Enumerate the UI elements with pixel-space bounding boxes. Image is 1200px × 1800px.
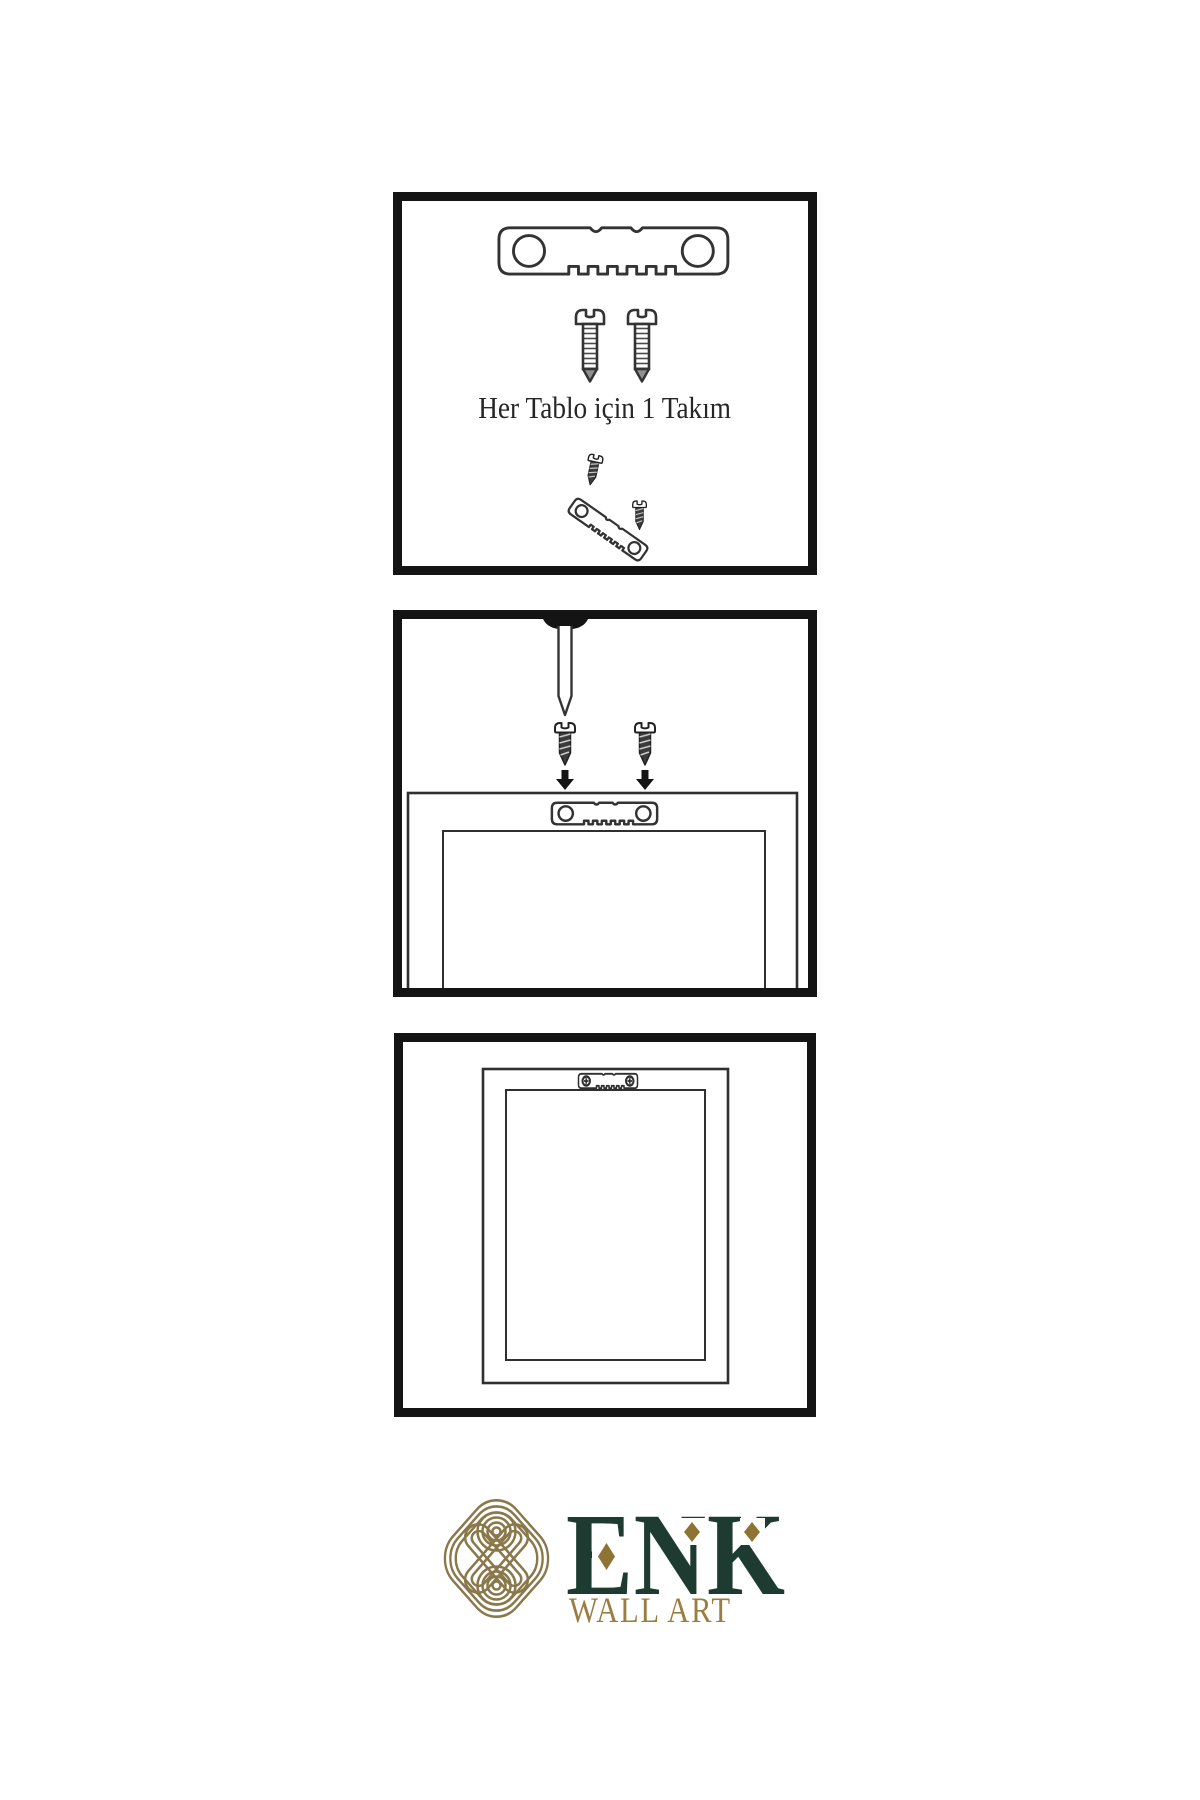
dark-screw-icon xyxy=(635,723,655,765)
diamond-accent-icon xyxy=(684,1522,700,1542)
letter-notch xyxy=(680,1518,705,1545)
down-arrow-icon xyxy=(636,770,654,790)
frame-back-inner-icon xyxy=(443,831,765,988)
panel-mounting xyxy=(393,610,817,997)
letter-notch xyxy=(740,1518,765,1545)
diamond-accent-icon xyxy=(598,1543,615,1570)
instruction-sheet: Her Tablo için 1 Takım xyxy=(0,0,1200,1800)
mounting-illustration xyxy=(402,619,808,988)
brand-tagline: WALL ART xyxy=(569,1591,760,1629)
screw-icon xyxy=(628,310,656,382)
panel-hardware-kit: Her Tablo için 1 Takım xyxy=(393,192,817,575)
screw-into-hanger-group xyxy=(567,454,649,562)
brand-name: ENK xyxy=(566,1496,825,1614)
letter-notch xyxy=(592,1540,618,1572)
down-arrow-icon xyxy=(556,770,574,790)
panel-hanging xyxy=(394,1033,816,1417)
dark-screw-icon xyxy=(555,723,575,765)
wall-nail-icon xyxy=(559,626,572,715)
diamond-accent-icon xyxy=(744,1522,760,1542)
frame-back-inner-icon xyxy=(506,1090,705,1360)
hardware-kit-illustration xyxy=(402,201,808,566)
kit-caption: Her Tablo için 1 Takım xyxy=(402,391,808,425)
screw-icon xyxy=(576,310,604,382)
hanging-illustration xyxy=(403,1042,807,1408)
frame-back-outer-icon xyxy=(483,1069,728,1383)
angled-screw-icon xyxy=(583,454,603,487)
sawtooth-hanger-on-frame-icon xyxy=(552,803,657,825)
small-screw-icon xyxy=(633,501,647,530)
knot-logo-icon xyxy=(433,1487,560,1630)
sawtooth-hanger-icon xyxy=(499,228,728,274)
